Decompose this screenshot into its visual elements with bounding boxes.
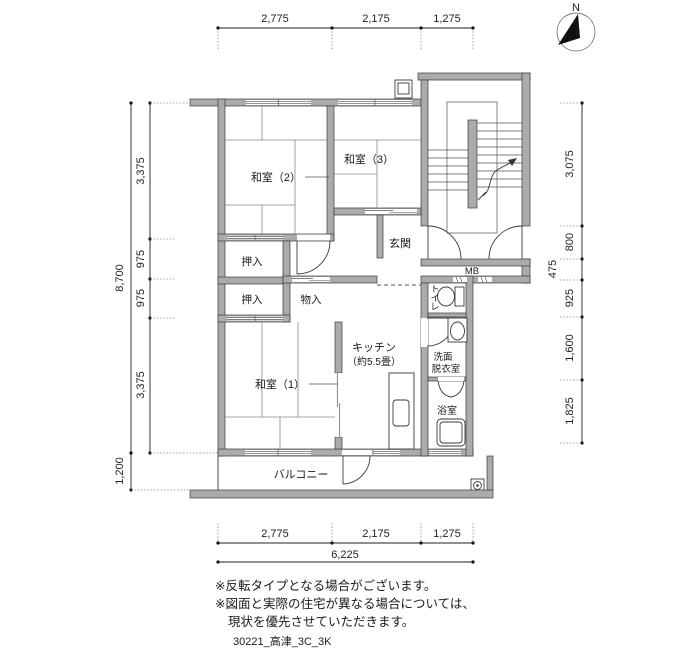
wall-genkan-west bbox=[377, 215, 383, 258]
washbasin-fixture bbox=[448, 318, 467, 342]
floorplan-page: N 2,775 2,175 1,275 3,375 975 975 3,375 … bbox=[0, 0, 700, 650]
label-datsui: 脱衣室 bbox=[432, 363, 461, 375]
dim-top-1: 2,775 bbox=[261, 13, 289, 25]
wall-toilet-washroom-divider bbox=[428, 313, 466, 317]
note-line-3: 現状を優先させていただきます。 bbox=[228, 615, 414, 629]
label-washitsu2: 和室（2） bbox=[251, 170, 301, 184]
dim-right-1: 3,075 bbox=[564, 150, 576, 178]
neighbor-door-arc bbox=[489, 226, 522, 259]
balcony-side-wall bbox=[487, 456, 493, 490]
toilet-fixture bbox=[438, 287, 465, 306]
stairwell bbox=[428, 102, 522, 233]
notes: ※反転タイプとなる場合がございます。 ※図面と実際の住宅が異なる場合については、… bbox=[215, 578, 475, 648]
dim-bottom-3: 1,275 bbox=[433, 528, 461, 540]
label-oshiire-lower: 押入 bbox=[242, 293, 263, 306]
label-mononyu: 物入 bbox=[301, 293, 322, 306]
label-genkan: 玄関 bbox=[389, 236, 411, 250]
dim-balcony-depth: 1,200 bbox=[114, 457, 126, 485]
wall-right bbox=[466, 276, 473, 456]
dim-left-total: 8,700 bbox=[114, 264, 126, 292]
dim-right-3: 475 bbox=[547, 260, 559, 278]
kitchen-counter-fixture bbox=[389, 373, 414, 449]
dim-bottom-2: 2,175 bbox=[362, 528, 390, 540]
label-balcony: バルコニー bbox=[274, 468, 329, 481]
wall-oshiire-mid bbox=[218, 277, 290, 284]
dim-right-2: 800 bbox=[564, 233, 576, 251]
entrance-door-arc bbox=[428, 226, 461, 259]
note-line-1: ※反転タイプとなる場合がございます。 bbox=[215, 578, 436, 593]
drawing-code: 30221_高津_3C_3K bbox=[233, 634, 332, 648]
wall-mb bbox=[421, 276, 530, 283]
dim-left-4: 3,375 bbox=[135, 371, 147, 399]
balcony-rail bbox=[190, 490, 493, 498]
dimension-bottom: 2,775 2,175 1,275 6,225 bbox=[216, 523, 474, 564]
wall-sanitary-west bbox=[421, 283, 428, 456]
dim-top-3: 1,275 bbox=[433, 13, 461, 25]
bathtub-fixture bbox=[437, 419, 465, 446]
washitsu2-door-arc bbox=[297, 241, 330, 274]
wall-kitchen-west-lower bbox=[335, 437, 342, 449]
wall-kitchen-west-upper bbox=[335, 322, 342, 373]
dim-right-4: 925 bbox=[564, 289, 576, 307]
pipe-shaft bbox=[395, 80, 412, 98]
dimension-top: 2,775 2,175 1,275 bbox=[216, 13, 474, 50]
label-oshiire-upper: 押入 bbox=[242, 255, 263, 268]
stair-direction-arrow bbox=[482, 161, 514, 196]
stair-stringer bbox=[468, 120, 477, 208]
label-senmen: 洗面 bbox=[433, 351, 452, 363]
compass-north-label: N bbox=[572, 2, 580, 14]
label-washitsu3: 和室（3） bbox=[344, 152, 394, 166]
north-arrow-icon bbox=[558, 14, 580, 45]
wall-stair-right bbox=[522, 73, 530, 226]
floorplan-drawing: N 2,775 2,175 1,275 3,375 975 975 3,375 … bbox=[0, 0, 700, 650]
dim-left-1: 3,375 bbox=[135, 157, 147, 185]
dim-right-5: 1,600 bbox=[564, 334, 576, 362]
dim-left-2: 975 bbox=[135, 250, 147, 268]
dim-top-2: 2,175 bbox=[362, 13, 390, 25]
dim-right-6: 1,825 bbox=[564, 397, 576, 425]
dim-bottom-1: 2,775 bbox=[261, 528, 289, 540]
note-line-2: ※図面と実際の住宅が異なる場合については、 bbox=[215, 596, 475, 611]
dim-left-3: 975 bbox=[135, 289, 147, 307]
compass: N bbox=[557, 2, 595, 51]
label-bath: 浴室 bbox=[437, 404, 457, 417]
dim-bottom-total: 6,225 bbox=[331, 549, 359, 561]
balcony bbox=[190, 456, 493, 498]
dimension-left: 3,375 975 975 3,375 8,700 1,200 bbox=[114, 101, 218, 491]
label-kitchen-size: （約5.5畳） bbox=[347, 355, 401, 368]
label-meter-box: MB bbox=[465, 266, 479, 277]
wall-landing-bottom bbox=[421, 259, 530, 266]
wall-washitsu2-3-divider bbox=[327, 106, 334, 241]
wall-stair-top bbox=[418, 73, 530, 80]
wall-stair-left bbox=[421, 80, 428, 226]
balcony-door-arc bbox=[343, 456, 370, 484]
label-toilet-3: レ bbox=[430, 302, 439, 312]
dimension-right: 3,075 800 475 925 1,600 1,825 bbox=[547, 101, 584, 444]
label-kitchen: キッチン bbox=[352, 341, 396, 354]
label-washitsu1: 和室（1） bbox=[255, 377, 305, 391]
